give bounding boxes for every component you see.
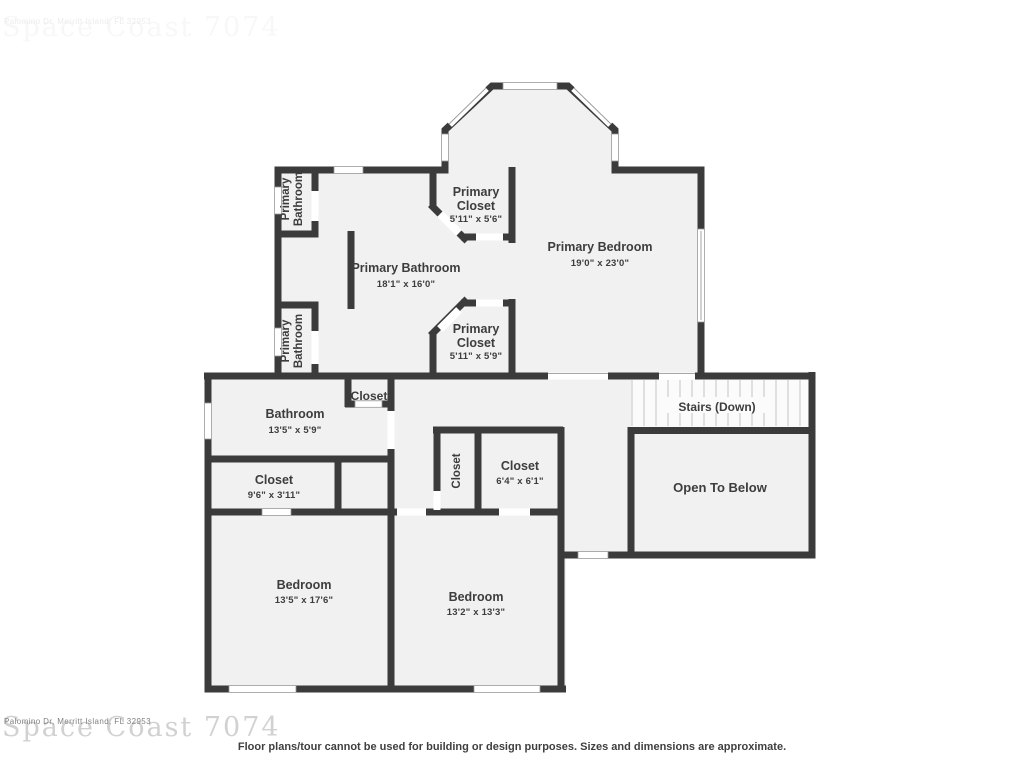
label-primary-bathroom-upper: PrimaryBathroom bbox=[280, 172, 305, 226]
door-opening bbox=[434, 491, 441, 510]
svg-text:Primary Bathroom: Primary Bathroom bbox=[351, 261, 460, 275]
svg-text:Closet: Closet bbox=[457, 336, 496, 350]
svg-text:13'5" x 5'9": 13'5" x 5'9" bbox=[269, 425, 322, 436]
floor-plan-page: Space Coast 7074 Palomino Dr, Merritt Is… bbox=[0, 0, 1024, 768]
door-opening bbox=[388, 411, 395, 449]
svg-text:Primary: Primary bbox=[453, 185, 500, 199]
svg-text:Bathroom: Bathroom bbox=[265, 407, 324, 421]
window bbox=[334, 167, 363, 174]
svg-text:5'11" x 5'9": 5'11" x 5'9" bbox=[450, 351, 502, 362]
door-opening bbox=[499, 509, 530, 516]
label-hall-closet: Closet bbox=[351, 389, 388, 403]
window bbox=[205, 403, 212, 439]
svg-text:13'5" x 17'6": 13'5" x 17'6" bbox=[275, 595, 333, 606]
svg-text:18'1" x 16'0": 18'1" x 16'0" bbox=[377, 279, 435, 290]
svg-text:9'6" x 3'11": 9'6" x 3'11" bbox=[248, 490, 300, 501]
window bbox=[229, 686, 296, 693]
window bbox=[578, 552, 608, 559]
window bbox=[474, 686, 540, 693]
cased-opening-framed bbox=[262, 509, 291, 516]
floor-plan-svg: PrimaryBathroom Primary Closet 5'11" x 5… bbox=[0, 0, 1024, 768]
svg-text:Primary: Primary bbox=[453, 322, 500, 336]
window bbox=[442, 134, 449, 161]
door-opening bbox=[397, 509, 426, 516]
svg-text:Closet: Closet bbox=[457, 199, 496, 213]
door-opening bbox=[476, 234, 503, 241]
door-opening bbox=[476, 300, 503, 307]
svg-text:Bedroom: Bedroom bbox=[277, 578, 332, 592]
window bbox=[612, 134, 619, 161]
door-opening bbox=[312, 191, 319, 221]
svg-text:6'4" x 6'1": 6'4" x 6'1" bbox=[496, 476, 543, 487]
label-primary-bathroom-lower: PrimaryBathroom bbox=[280, 314, 305, 368]
label-closet-narrow: Closet bbox=[451, 453, 463, 488]
door-opening bbox=[312, 331, 319, 364]
svg-text:Closet: Closet bbox=[501, 459, 540, 473]
label-stairs: Stairs (Down) bbox=[678, 400, 755, 414]
label-primary-closet-upper: Primary Closet 5'11" x 5'6" bbox=[450, 185, 502, 225]
bay-window bbox=[503, 83, 557, 90]
svg-text:Closet: Closet bbox=[255, 473, 294, 487]
label-open-to-below: Open To Below bbox=[673, 480, 768, 495]
svg-text:19'0" x 23'0": 19'0" x 23'0" bbox=[571, 258, 629, 269]
label-primary-closet-lower: Primary Closet 5'11" x 5'9" bbox=[450, 322, 502, 362]
svg-text:13'2" x 13'3": 13'2" x 13'3" bbox=[447, 607, 505, 618]
disclaimer-text: Floor plans/tour cannot be used for buil… bbox=[0, 741, 1024, 753]
svg-text:Bedroom: Bedroom bbox=[449, 590, 504, 604]
svg-text:5'11" x 5'6": 5'11" x 5'6" bbox=[450, 214, 502, 225]
svg-text:Primary Bedroom: Primary Bedroom bbox=[548, 240, 653, 254]
